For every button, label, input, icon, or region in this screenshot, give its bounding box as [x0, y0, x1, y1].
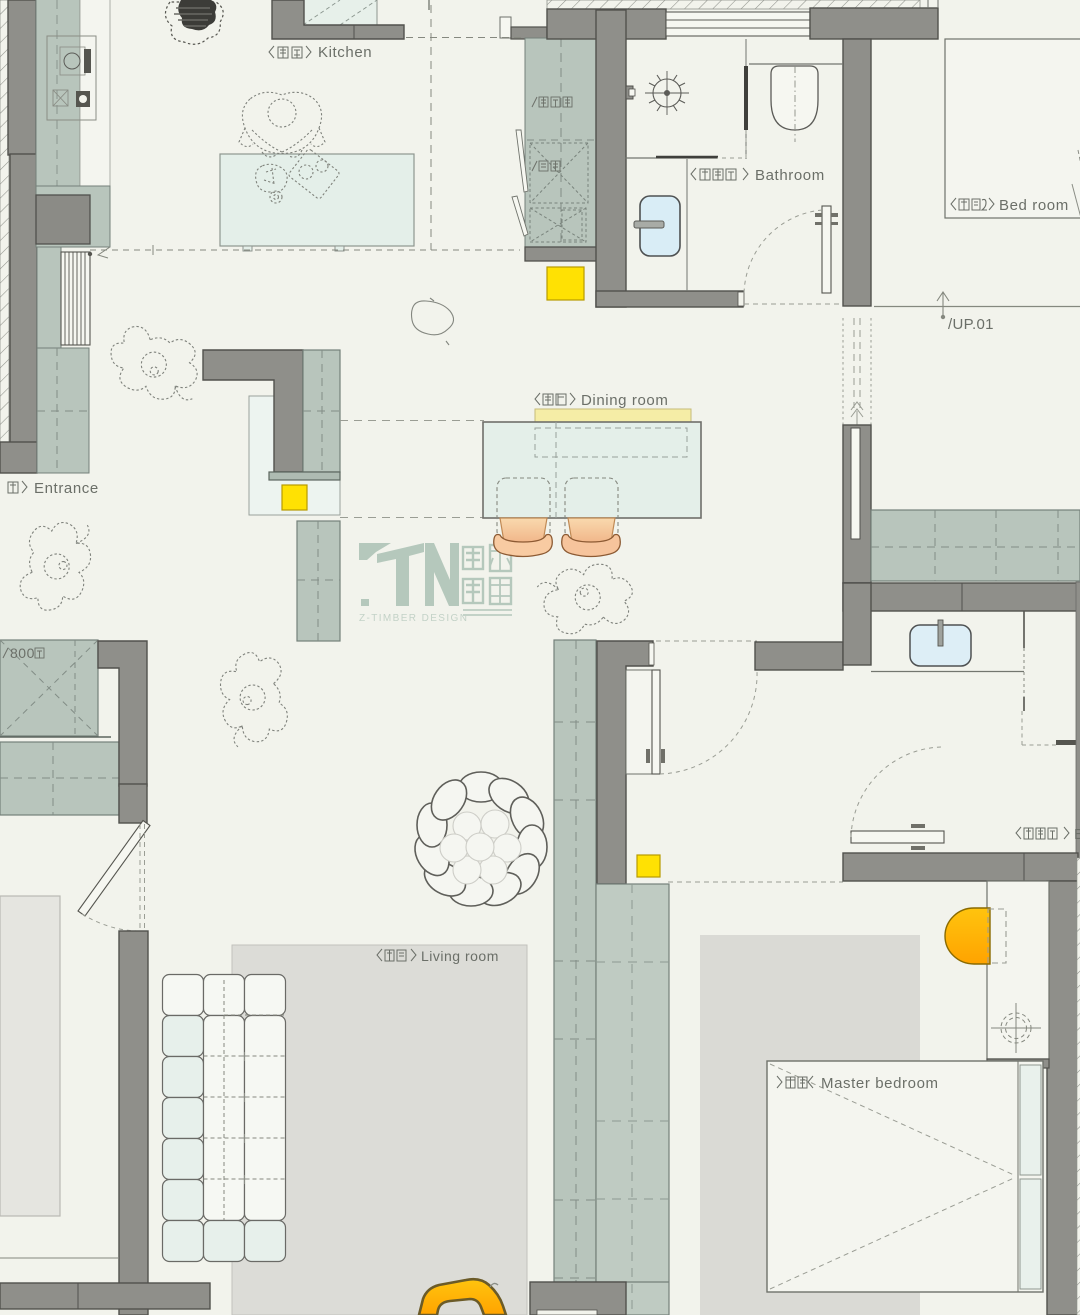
svg-text:/UP.01: /UP.01 — [948, 316, 994, 333]
svg-text:800: 800 — [10, 645, 35, 661]
svg-text:Bathroom: Bathroom — [755, 167, 825, 184]
svg-text:Living room: Living room — [421, 948, 499, 964]
svg-text:Kitchen: Kitchen — [318, 44, 372, 61]
svg-text:Entrance: Entrance — [34, 480, 99, 497]
svg-text:Z-TIMBER DESIGN: Z-TIMBER DESIGN — [359, 613, 468, 624]
svg-text:B: B — [1074, 826, 1080, 843]
svg-text:Master bedroom: Master bedroom — [821, 1075, 939, 1092]
svg-text:Bed room: Bed room — [999, 197, 1069, 214]
svg-text:Dining room: Dining room — [581, 392, 668, 409]
